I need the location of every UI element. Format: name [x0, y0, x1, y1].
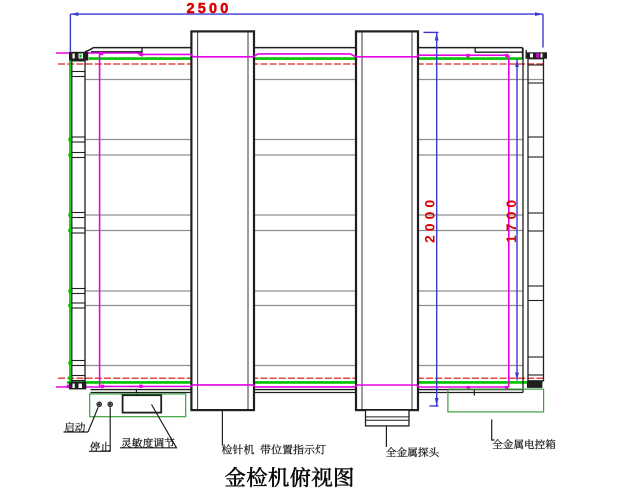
- svg-text:2000: 2000: [422, 196, 438, 243]
- svg-text:2500: 2500: [186, 1, 231, 17]
- svg-text:1700: 1700: [503, 196, 519, 243]
